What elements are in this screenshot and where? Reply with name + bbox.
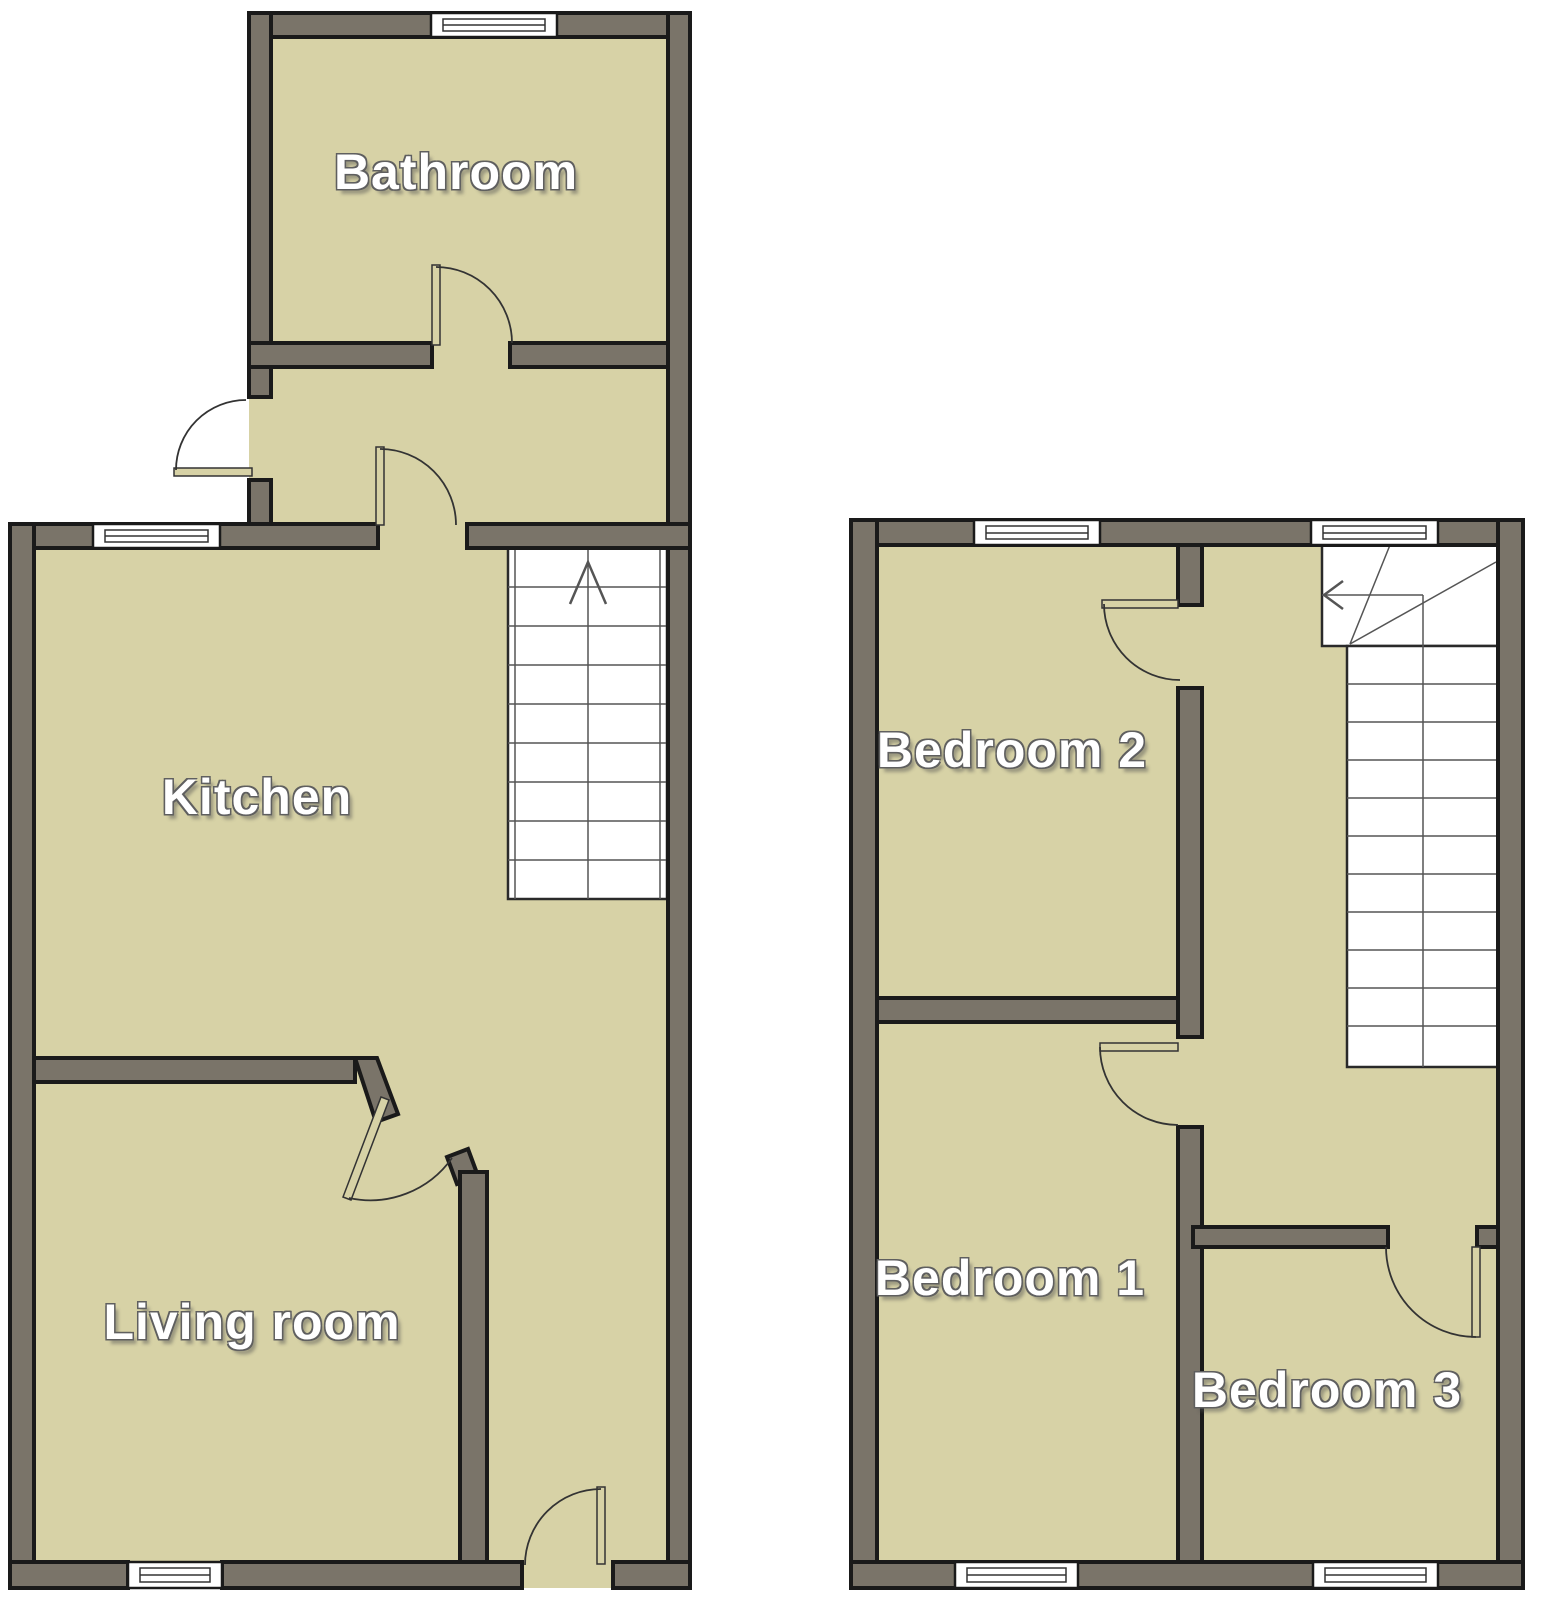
window-bathroom — [431, 13, 557, 37]
window-landing — [1311, 520, 1438, 545]
window-bedroom-1 — [955, 1562, 1078, 1588]
room-label-living-room: Living room — [103, 1293, 400, 1351]
staircase-first — [1322, 543, 1498, 1067]
room-label-bedroom-1: Bedroom 1 — [875, 1249, 1145, 1307]
window-kitchen — [93, 524, 220, 548]
window-living-room — [128, 1562, 222, 1588]
staircase-ground — [508, 548, 667, 899]
bathroom-hall-floor — [249, 13, 690, 548]
room-label-bedroom-3: Bedroom 3 — [1192, 1361, 1462, 1419]
room-label-bathroom: Bathroom — [334, 143, 578, 201]
room-label-bedroom-2: Bedroom 2 — [877, 721, 1147, 779]
window-bedroom-2 — [974, 520, 1100, 545]
door-entrance-side — [174, 400, 252, 476]
floorplan-canvas: Bathroom Kitchen Living room Bedroom 2 B… — [0, 0, 1541, 1600]
room-label-kitchen: Kitchen — [162, 768, 352, 826]
first-floor-plan — [851, 520, 1523, 1588]
window-bedroom-3 — [1313, 1562, 1438, 1588]
